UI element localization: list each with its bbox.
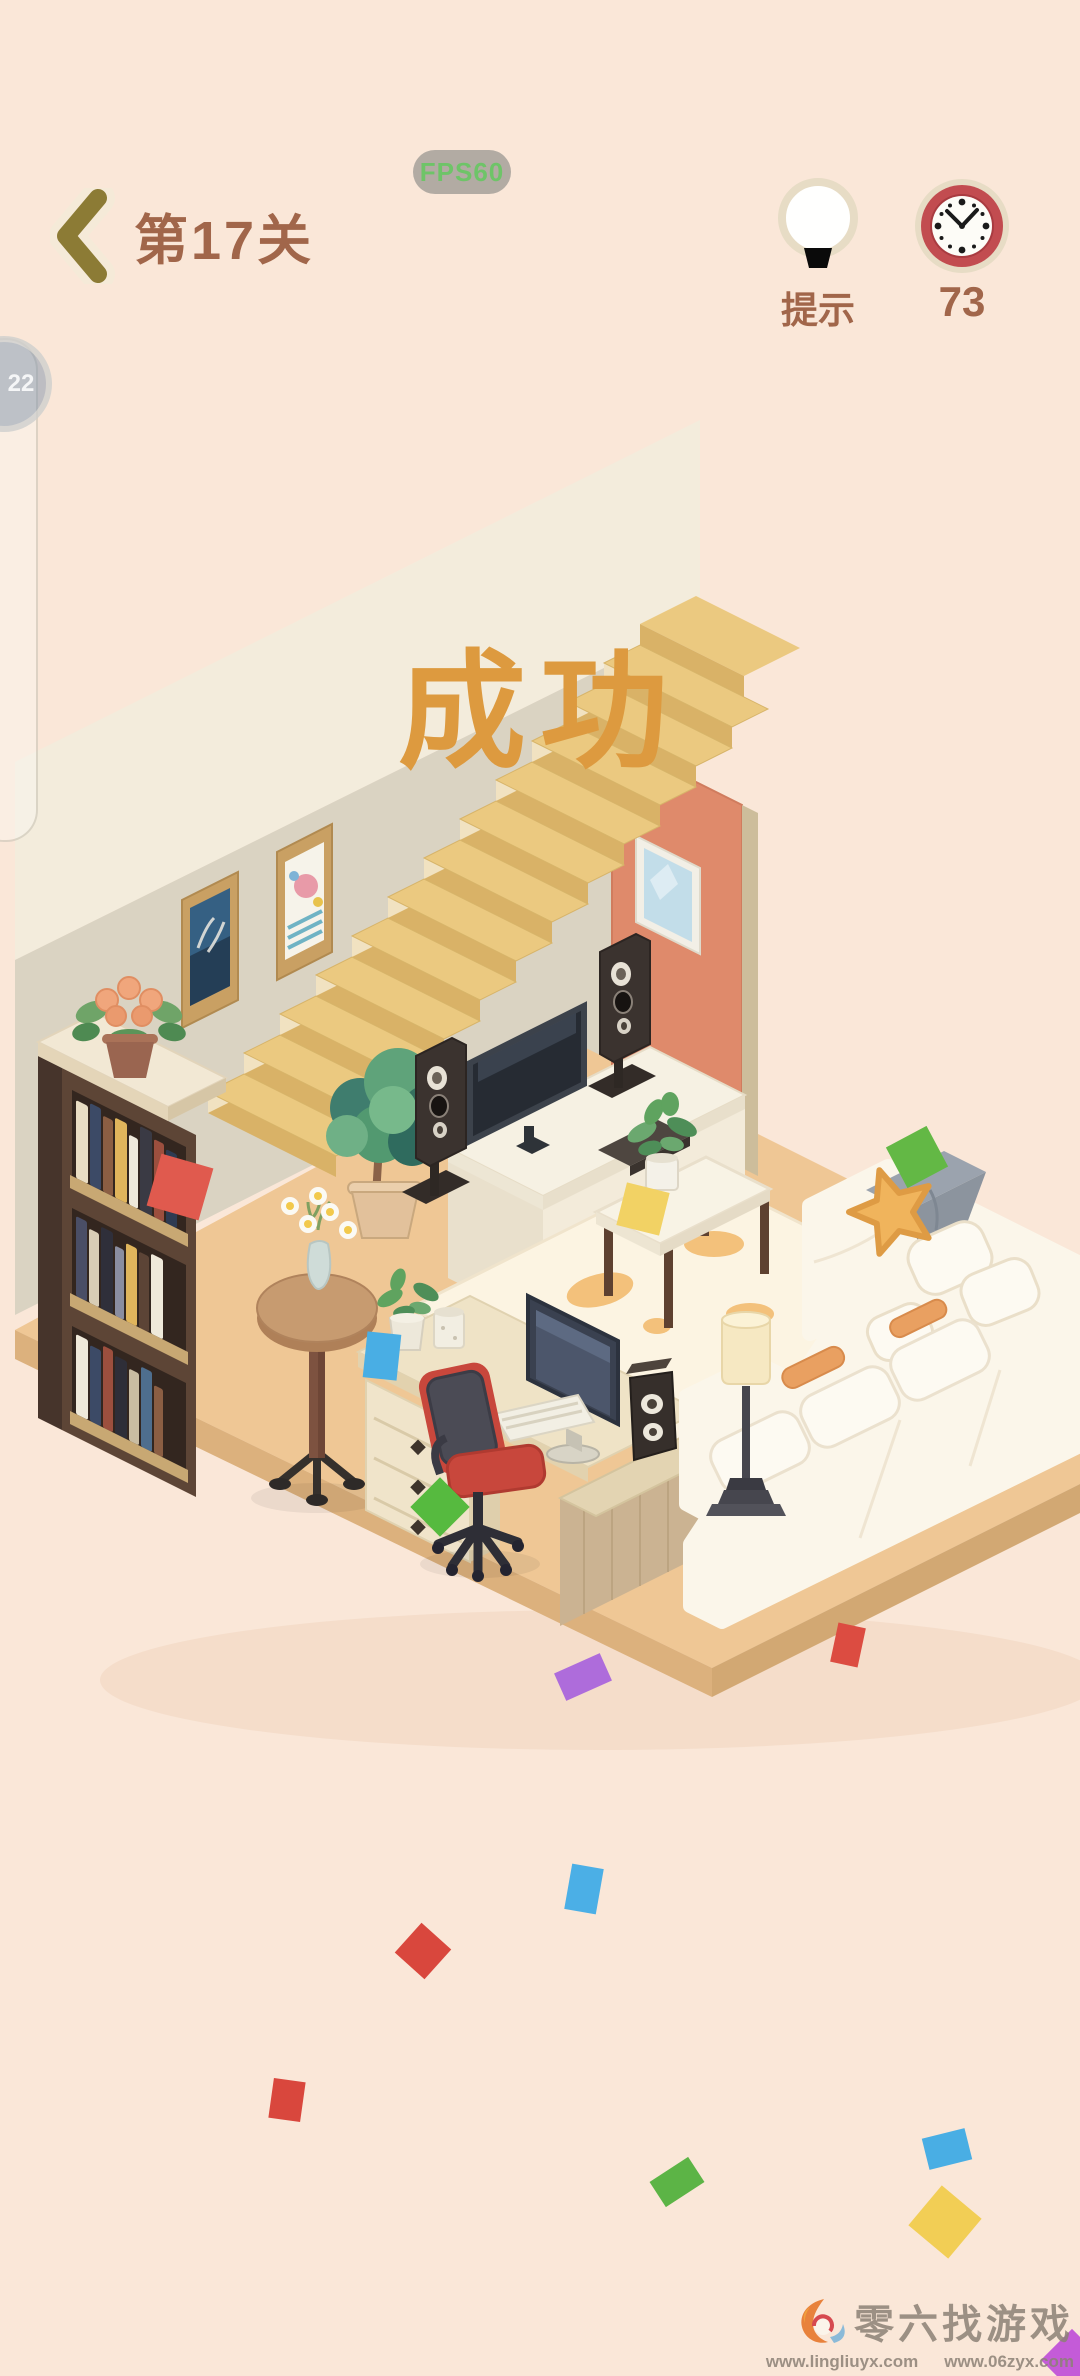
- confetti-piece: [363, 1331, 402, 1380]
- hint-label: 提示: [756, 280, 880, 334]
- watermark-logo-icon: [794, 2295, 846, 2347]
- watermark-url-left: www.lingliuyx.com: [766, 2352, 918, 2372]
- clock-icon: [908, 176, 1016, 276]
- fps-badge: FPS60: [413, 150, 511, 194]
- confetti-piece: [268, 2078, 305, 2122]
- watermark-site-name: 零六找游戏: [854, 2292, 1074, 2350]
- back-button[interactable]: [50, 188, 120, 284]
- timer-value: 73: [908, 278, 1016, 326]
- mug[interactable]: [434, 1307, 464, 1348]
- watermark: 零六找游戏 www.lingliuyx.com www.06zyx.com: [766, 2292, 1074, 2372]
- level-title: 第17关: [134, 196, 314, 275]
- lightbulb-icon: [756, 174, 880, 278]
- wall-picture-navy[interactable]: [182, 872, 238, 1028]
- watermark-url-right: www.06zyx.com: [944, 2352, 1074, 2372]
- success-banner: 成功: [0, 608, 1080, 793]
- wall-picture-floral[interactable]: [277, 824, 332, 980]
- floating-widget-value: 22: [0, 370, 34, 398]
- timer: 73: [908, 176, 1016, 326]
- game-screen: { "header": { "level_label": "第17关", "fp…: [0, 0, 1080, 2376]
- hint-button[interactable]: 提示: [756, 174, 880, 334]
